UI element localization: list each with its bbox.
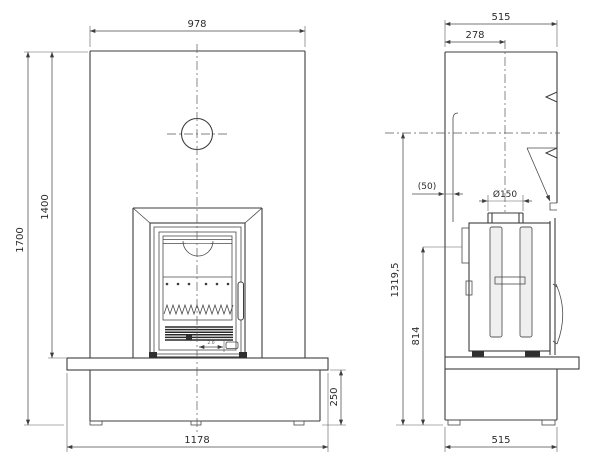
- convection-slot-rear: [490, 227, 502, 337]
- side-bench-foot-left: [448, 420, 460, 425]
- dim-rear-gap: (50): [418, 182, 436, 192]
- front-surround: [90, 51, 305, 358]
- bench-foot-left: [90, 421, 102, 425]
- louvre-grille: [165, 327, 233, 340]
- flame-zigzag: [164, 305, 233, 314]
- dim-flue-diameter: Ø150: [493, 189, 518, 200]
- door-handle: [238, 282, 244, 320]
- dim-door-detail: 2.0: [207, 340, 214, 346]
- rear-bracket-upper: [462, 228, 469, 263]
- bench-plinth: [90, 370, 320, 421]
- door-slab: [550, 218, 555, 355]
- dim-stove-top-height: 814: [411, 326, 422, 345]
- dim-bench-width: 1178: [184, 435, 209, 446]
- side-bench-foot-right: [542, 420, 555, 425]
- side-stove-body: [462, 213, 563, 357]
- front-view: 2.0 978 1700 1400 250 1178: [15, 19, 346, 452]
- bench-foot-right: [294, 421, 304, 425]
- front-centerlines: [167, 44, 228, 432]
- dim-flue-center-height: 1319,5: [390, 263, 401, 298]
- flue-collar: [488, 213, 523, 223]
- airflow-arrow-upper-icon: [546, 92, 557, 102]
- dim-depth-top: 515: [491, 12, 510, 23]
- bench-slab: [67, 358, 328, 370]
- frame-bevels: [133, 208, 262, 223]
- side-bench: [445, 357, 579, 425]
- side-centerlines: [385, 40, 560, 212]
- hood-diagonal-arrow: [527, 148, 550, 201]
- front-lip: [550, 203, 557, 210]
- side-door-handle: [556, 284, 563, 344]
- dim-bench-height: 250: [329, 387, 340, 406]
- side-bench-slab: [445, 357, 579, 369]
- door-latch: [186, 335, 192, 340]
- front-stove-insert: 2.0: [133, 208, 262, 358]
- airflow-arrow-lower-icon: [546, 148, 557, 158]
- dim-flue-offset: 278: [465, 30, 484, 41]
- side-inner-back-line: [453, 113, 458, 222]
- technical-drawing-canvas: 2.0 978 1700 1400 250 1178: [0, 0, 600, 474]
- front-dimensions: 978 1700 1400 250 1178: [15, 19, 346, 452]
- stove-foot-rear: [472, 351, 484, 357]
- bench-foot-center: [191, 421, 201, 425]
- airwash-strip: [163, 240, 232, 244]
- air-vent-dots: [166, 283, 230, 286]
- stove-foot-front: [525, 351, 540, 357]
- dim-overall-width: 978: [187, 19, 206, 30]
- frame-foot-right: [239, 352, 247, 358]
- front-bench: [67, 358, 328, 425]
- side-view: 515 278 (50) Ø150 1319,5 814: [385, 12, 579, 452]
- side-bench-plinth: [445, 369, 557, 420]
- dim-opening-height: 1400: [40, 194, 51, 219]
- dim-overall-height: 1700: [15, 227, 26, 252]
- fireplace-dimension-drawing: 2.0 978 1700 1400 250 1178: [0, 0, 600, 474]
- stove-body: [469, 223, 550, 351]
- frame-foot-left: [149, 352, 157, 358]
- convection-slot-front: [520, 227, 532, 337]
- dim-depth-bottom: 515: [491, 435, 510, 446]
